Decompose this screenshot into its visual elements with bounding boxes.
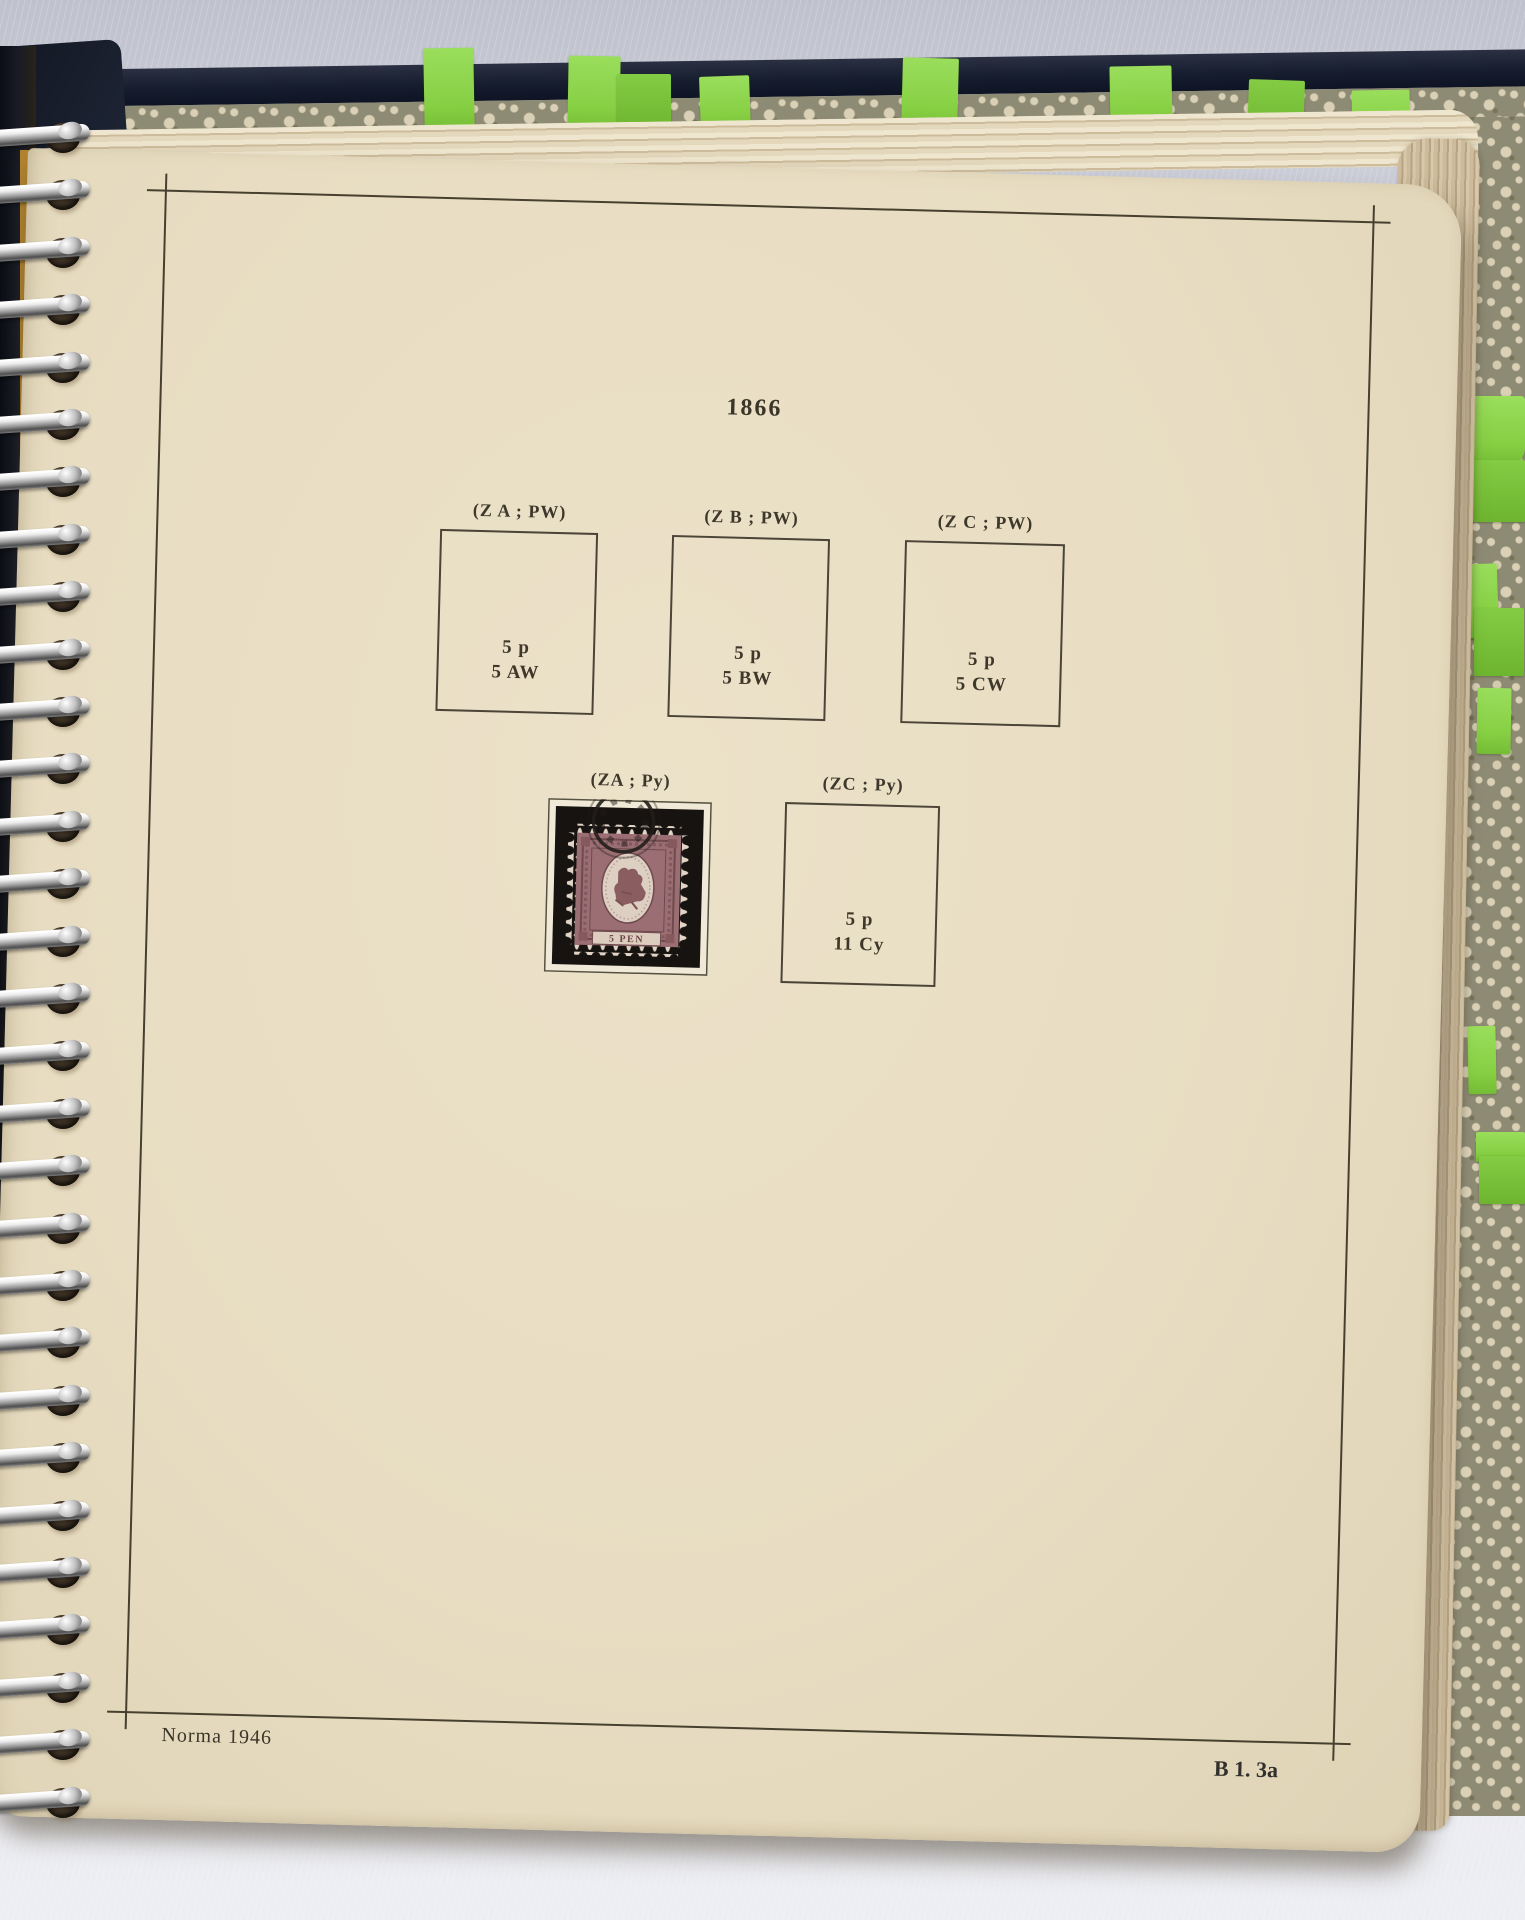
album-page: 1866 (Z A ; PW) 5 p 5 AW (Z B ; PW) 5 p … bbox=[0, 148, 1463, 1853]
stamp-slot: (Z C ; PW) 5 p 5 CW bbox=[900, 540, 1065, 727]
page-rule-bottom bbox=[107, 1711, 1351, 1746]
page-rule-right bbox=[1332, 205, 1375, 1761]
stamp-album-photo: 1866 (Z A ; PW) 5 p 5 AW (Z B ; PW) 5 p … bbox=[0, 0, 1525, 1920]
publisher-imprint: Norma 1946 bbox=[161, 1724, 272, 1750]
slot-label: (Z A ; PW) bbox=[473, 500, 567, 523]
page-number: B 1. 3a bbox=[1166, 1754, 1327, 1784]
sticky-tab bbox=[1467, 1026, 1496, 1094]
stamp-slot: (Z A ; PW) 5 p 5 AW bbox=[435, 529, 598, 715]
year-heading: 1866 bbox=[654, 392, 855, 424]
stamp-slot-box: 5 p 5 AW bbox=[435, 529, 598, 715]
sticky-tab bbox=[1470, 460, 1525, 522]
stamp-slot-box: 5 p 11 Cy bbox=[780, 802, 940, 987]
slot-denomination: 5 p bbox=[734, 641, 762, 667]
slot-denomination: 5 p bbox=[502, 635, 530, 661]
slot-label: (ZC ; Py) bbox=[822, 773, 904, 796]
stamp-slot-box: 5 p 5 CW bbox=[900, 540, 1065, 727]
stamp-mount: 5 PEN bbox=[544, 798, 712, 976]
mounted-stamp-slot: (ZA ; Py) bbox=[544, 798, 712, 976]
slot-catalog-number: 11 Cy bbox=[833, 931, 885, 957]
sticky-tab bbox=[423, 48, 474, 133]
slot-catalog-number: 5 CW bbox=[955, 671, 1007, 697]
sticky-tab bbox=[1479, 1156, 1525, 1204]
finland-1866-stamp: 5 PEN bbox=[544, 798, 712, 976]
stamp-slot: (Z B ; PW) 5 p 5 BW bbox=[667, 535, 830, 721]
page-rule-top bbox=[147, 189, 1391, 224]
stamp-denomination-text: 5 PEN bbox=[609, 933, 644, 945]
slot-label: (Z B ; PW) bbox=[704, 506, 799, 529]
sticky-tab bbox=[1468, 396, 1525, 466]
page-rule-left bbox=[125, 174, 168, 1730]
slot-label: (Z C ; PW) bbox=[938, 511, 1034, 534]
sticky-tab bbox=[1476, 688, 1511, 755]
stamp-slot: (ZC ; Py) 5 p 11 Cy bbox=[780, 802, 940, 987]
slot-label: (ZA ; Py) bbox=[590, 769, 671, 792]
sticky-tab bbox=[1474, 608, 1524, 676]
sticky-tab bbox=[567, 56, 620, 133]
slot-denomination: 5 p bbox=[845, 907, 873, 933]
slot-denomination: 5 p bbox=[968, 647, 996, 673]
slot-catalog-number: 5 BW bbox=[722, 665, 773, 691]
stamp-slot-box: 5 p 5 BW bbox=[667, 535, 830, 721]
slot-catalog-number: 5 AW bbox=[491, 659, 539, 685]
